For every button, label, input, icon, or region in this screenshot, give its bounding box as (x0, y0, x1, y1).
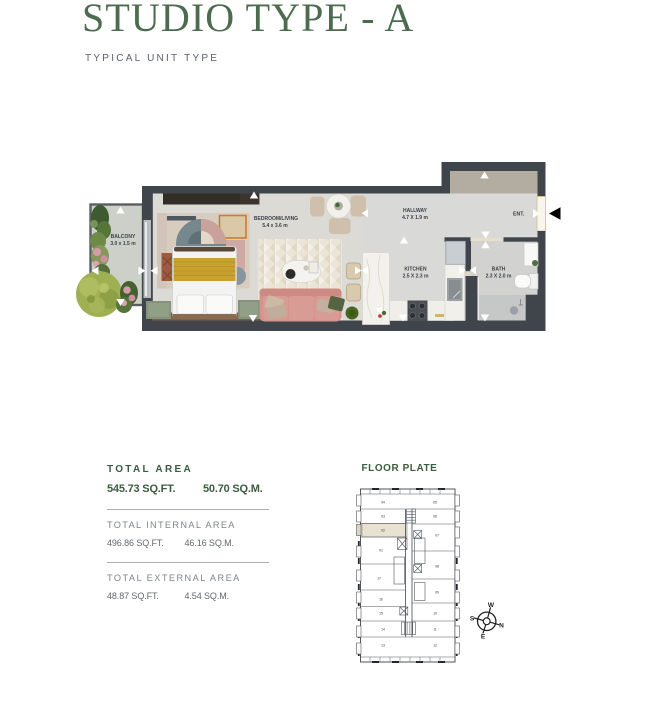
svg-text:07: 07 (435, 534, 439, 538)
svg-text:15: 15 (379, 612, 383, 616)
svg-text:S: S (470, 616, 475, 623)
svg-text:2.5 X 2.3 m: 2.5 X 2.3 m (403, 274, 429, 280)
svg-text:ENT.: ENT. (513, 212, 525, 218)
svg-text:2.3 X 2.0 m: 2.3 X 2.0 m (486, 274, 512, 280)
svg-text:06: 06 (433, 515, 437, 519)
svg-text:4.7 X 1.9 m: 4.7 X 1.9 m (402, 215, 428, 221)
svg-text:03: 03 (381, 515, 385, 519)
svg-text:01: 01 (379, 549, 383, 553)
svg-text:5.4 x 3.6 m: 5.4 x 3.6 m (262, 223, 288, 229)
svg-text:W: W (488, 602, 495, 609)
svg-text:09: 09 (435, 591, 439, 595)
svg-text:11: 11 (433, 628, 437, 632)
svg-text:17: 17 (377, 577, 381, 581)
svg-text:08: 08 (435, 565, 439, 569)
svg-text:KITCHEN: KITCHEN (404, 267, 427, 273)
svg-text:3.0 x 1.5 m: 3.0 x 1.5 m (110, 241, 136, 247)
svg-text:10: 10 (433, 612, 437, 616)
svg-text:N: N (499, 623, 504, 630)
svg-text:04: 04 (381, 501, 385, 505)
svg-text:BATH: BATH (492, 267, 506, 273)
svg-text:02: 02 (381, 529, 385, 533)
svg-text:E: E (481, 634, 486, 641)
svg-text:13: 13 (381, 644, 385, 648)
svg-text:HALLWAY: HALLWAY (403, 208, 428, 214)
svg-text:05: 05 (433, 501, 437, 505)
svg-text:12: 12 (433, 644, 437, 648)
svg-text:BALCONY: BALCONY (111, 234, 136, 240)
svg-text:14: 14 (381, 628, 385, 632)
svg-text:BEDROOM/LIVING: BEDROOM/LIVING (254, 216, 298, 222)
